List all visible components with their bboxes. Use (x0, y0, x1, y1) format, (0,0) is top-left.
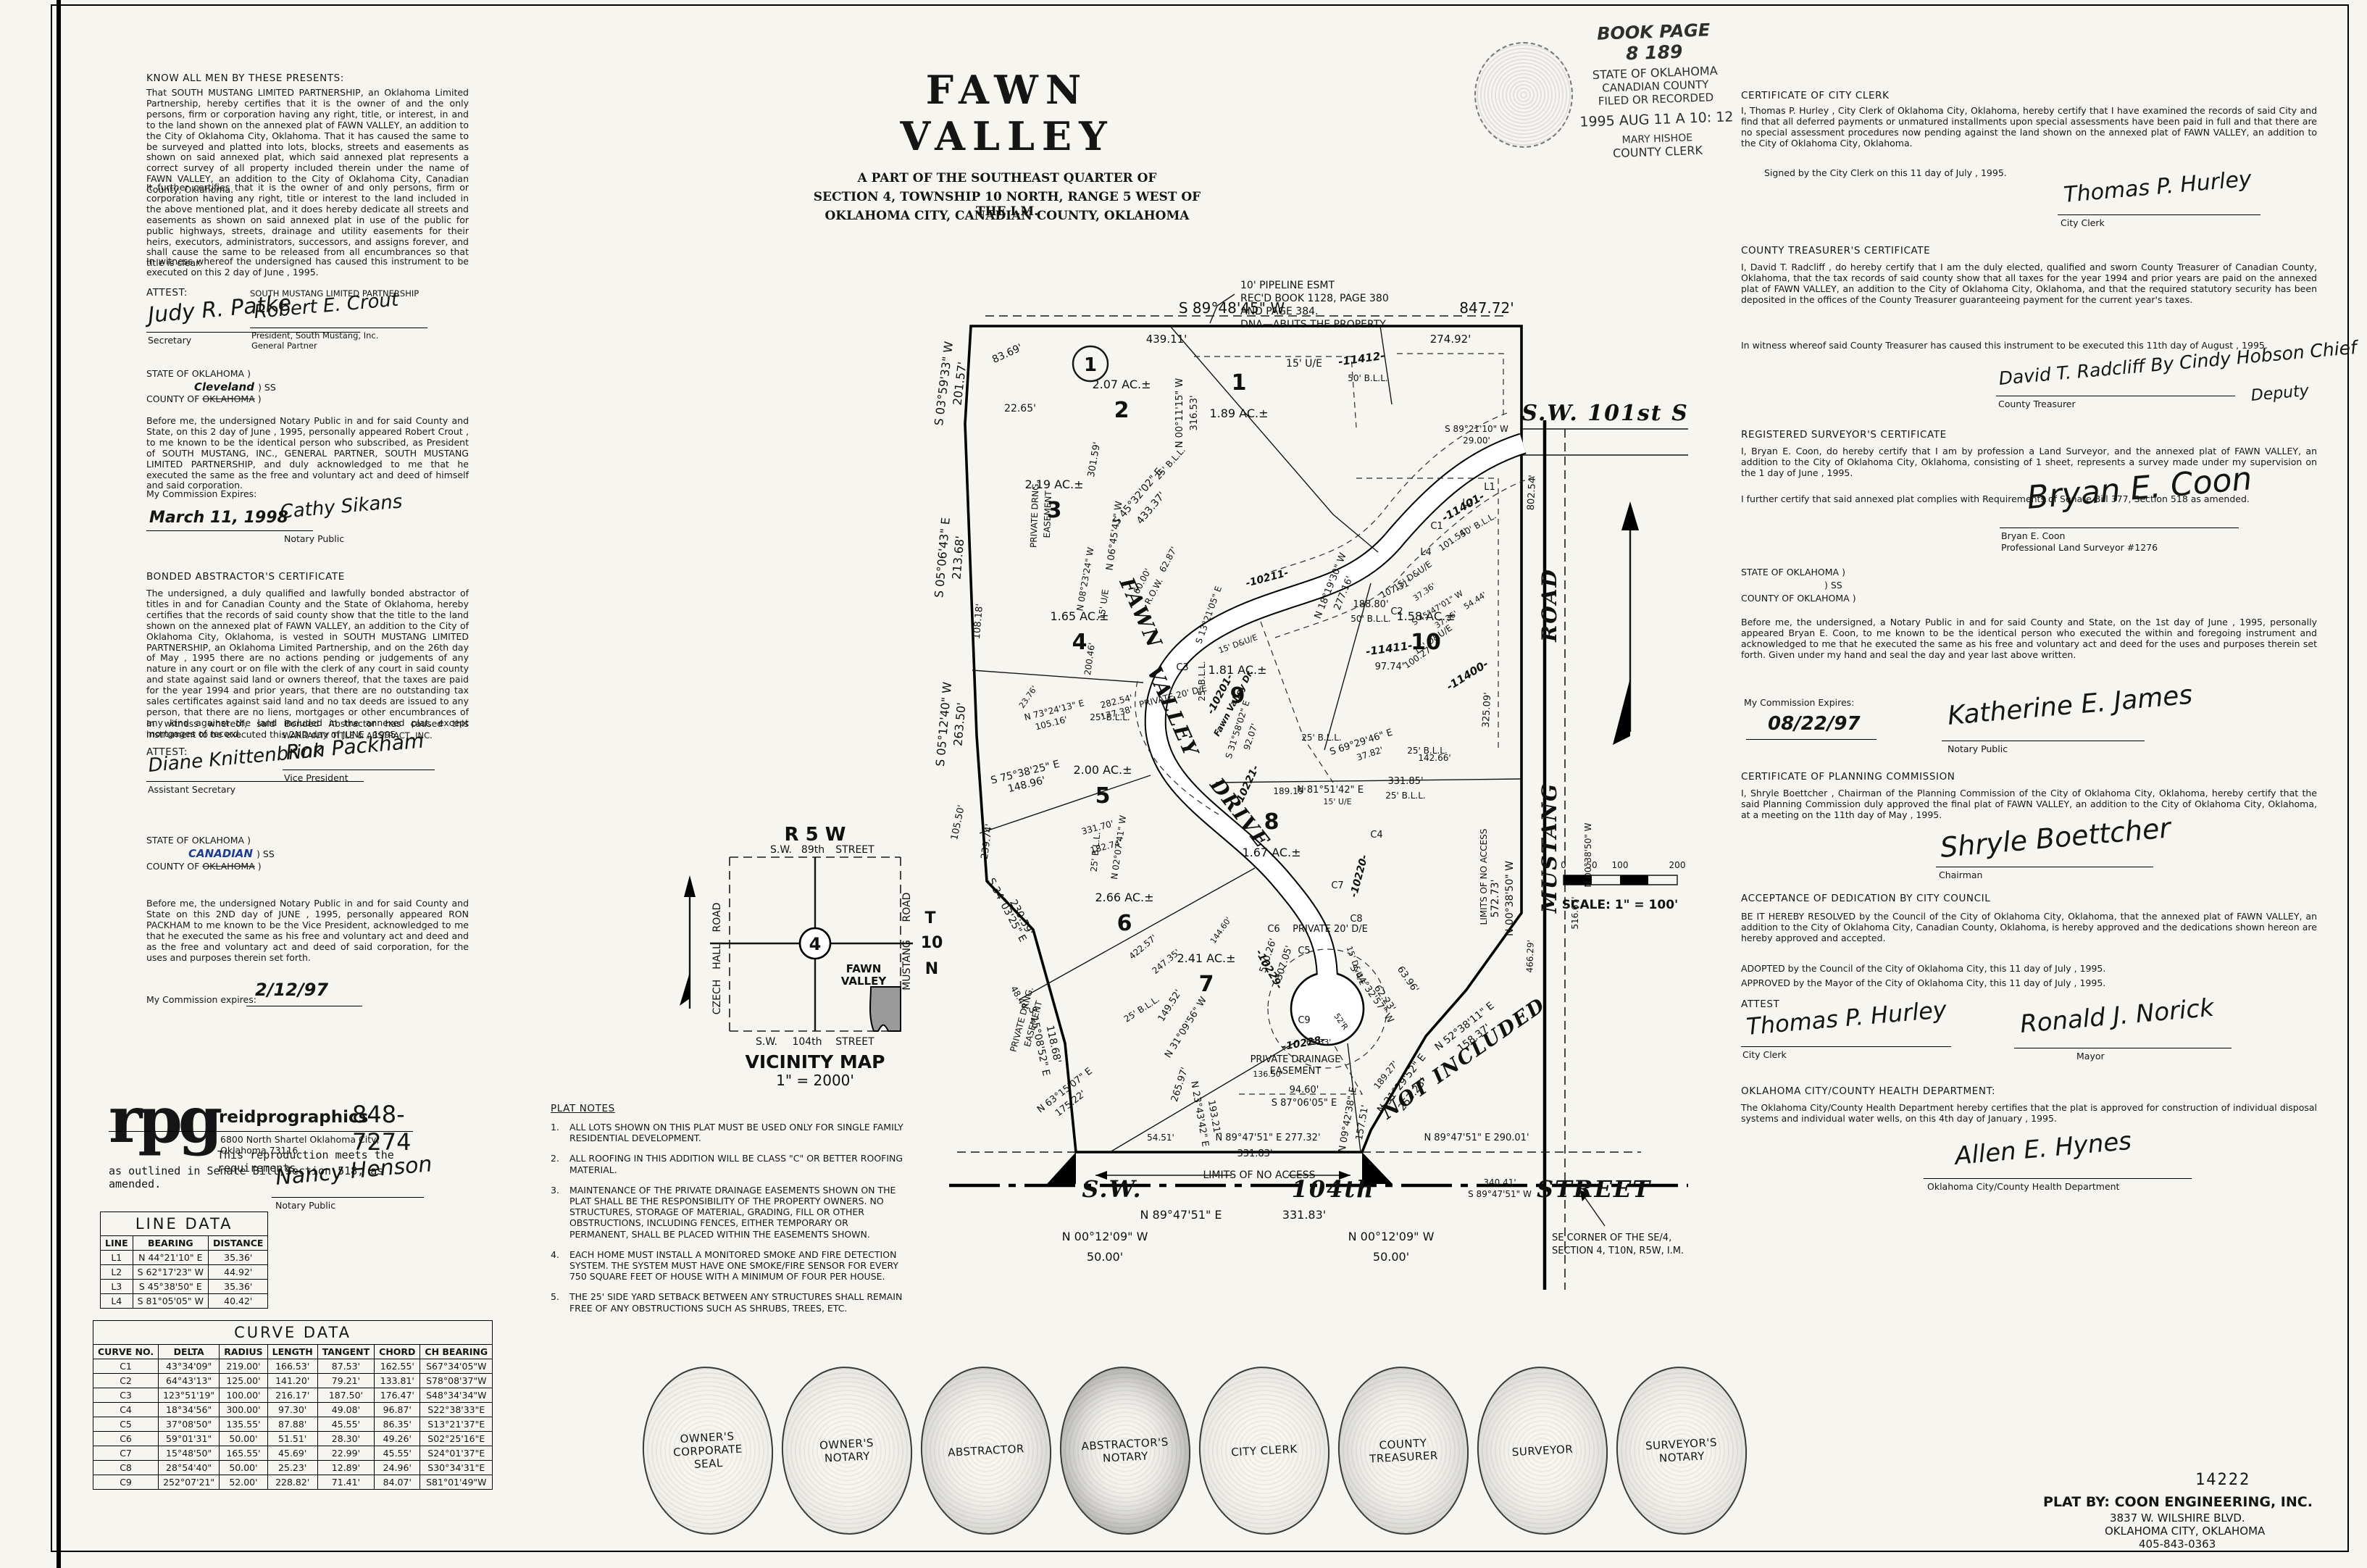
plat-label: 301.59' (1086, 441, 1103, 478)
plat-label: 7 (1199, 972, 1214, 997)
plat-label: N 89°47'51" E (1140, 1208, 1222, 1222)
plat-label: 2.19 AC.± (1024, 478, 1083, 491)
plat-label: 25' B.L.L. (1385, 791, 1425, 801)
table-cell: 96.87' (375, 1403, 420, 1417)
plat-label: 37.36' (1411, 581, 1437, 603)
notary3-paragraph: Before me, the undersigned, a Notary Pub… (1741, 617, 2317, 661)
plat-label: DNA—ABUTS THE PROPERTY (1240, 319, 1386, 330)
plat-label: 136.50' (1253, 1069, 1283, 1079)
plat-label: 8 (1264, 809, 1279, 835)
plat-label: N 08°23'24" W (1074, 546, 1095, 612)
table-cell: 52.00' (220, 1475, 267, 1490)
notary2-commission-value: 2/12/97 (255, 980, 328, 1000)
plat-note-text: EACH HOME MUST INSTALL A MONITORED SMOKE… (569, 1249, 910, 1283)
seal-label: COUNTY TREASURER (1359, 1435, 1448, 1466)
plat-label: 149.52' (1156, 988, 1185, 1024)
state2-line1: STATE OF OKLAHOMA ) (146, 835, 251, 846)
page-subtitle-3: OKLAHOMA CITY, CANADIAN COUNTY, OKLAHOMA (811, 209, 1203, 223)
table-header-cell: LENGTH (267, 1345, 317, 1359)
warranty-sigline (283, 770, 435, 770)
plat-label: 62.87' (1157, 545, 1179, 574)
smlp-role-2: General Partner (251, 341, 317, 351)
table-cell: 176.47' (375, 1388, 420, 1403)
easement-line (1261, 622, 1333, 783)
repro-rule (109, 1131, 413, 1132)
seal-label: SURVEYOR'S NOTARY (1637, 1435, 1726, 1466)
table-cell: S24°01'37"E (420, 1446, 493, 1461)
table-cell: 59°01'31" (159, 1432, 220, 1446)
plat-label: MUSTANG (901, 940, 913, 991)
plat-notes: PLAT NOTES 1.ALL LOTS SHOWN ON THIS PLAT… (551, 1103, 942, 1323)
warranty-role: Vice President (284, 772, 348, 783)
plat-label: PRIVATE DRAINAGE (1251, 1054, 1341, 1065)
state1-county-line: COUNTY OF OKLAHOMA ) (146, 393, 262, 404)
surveyor-license: Professional Land Surveyor #1276 (2001, 542, 2158, 553)
plat-label: R 5 W (785, 824, 846, 846)
plat-note-item: 1.ALL LOTS SHOWN ON THIS PLAT MUST BE US… (551, 1122, 942, 1143)
repro-note-2: as outlined in Senate Bill,Section 518, … (109, 1164, 420, 1190)
plat-label: N 00°12'09" W (1062, 1230, 1148, 1243)
plat-note-number: 2. (551, 1153, 559, 1175)
plat-label: 50' B.L.L. (1351, 614, 1390, 624)
plat-label: 2.66 AC.± (1095, 891, 1153, 904)
city-clerk-heading: CERTIFICATE OF CITY CLERK (1741, 90, 1890, 101)
plat-label: 331.83' (1282, 1208, 1326, 1222)
bonded-p1: The undersigned, a duly qualified and la… (146, 588, 469, 740)
sw-101st-row (1523, 429, 1688, 455)
embossed-seal (1474, 42, 1573, 148)
plat-label: S.W. (770, 844, 792, 856)
plat-label: 1.89 AC.± (1209, 406, 1268, 420)
plat-note-number: 3. (551, 1185, 559, 1240)
table-row: C418°34'56"300.00'97.30'49.08'96.87'S22°… (93, 1403, 493, 1417)
line-data-table: LINE DATA LINEBEARINGDISTANCE L1N 44°21'… (100, 1212, 268, 1309)
notary2-commission-label: My Commission expires: (146, 994, 256, 1005)
table-cell: S78°08'37"W (420, 1374, 493, 1388)
table-header-cell: DISTANCE (209, 1236, 268, 1251)
state3-line1: STATE OF OKLAHOMA ) (1741, 567, 1845, 577)
table-cell: S30°34'31"E (420, 1461, 493, 1475)
plat-label: 83.69' (990, 342, 1024, 366)
plat-label: ROAD (711, 903, 723, 933)
filing-stamp: BOOK PAGE 8 189 STATE OF OKLAHOMA CANADI… (1556, 18, 1756, 162)
plat-label: 105.50' (949, 804, 967, 841)
plat-label: -10211- (1245, 567, 1290, 590)
repro-name: reidprographics (219, 1108, 368, 1127)
plat-label: 1 (1084, 354, 1097, 376)
table-row: L4S 81°05'05" W40.42' (101, 1294, 268, 1309)
plat-label: STREET (1537, 1175, 1651, 1203)
surveyor-name: Bryan E. Coon (2001, 530, 2065, 541)
plat-label: S.W. 101st ST. (1521, 401, 1688, 426)
seal-label: SURVEYOR (1511, 1443, 1573, 1459)
plat-label: SCALE: 1" = 100' (1562, 898, 1679, 912)
notary2-paragraph: Before me, the undersigned Notary Public… (146, 898, 469, 963)
north-arrow-head (684, 875, 696, 897)
plat-label: N 09°42'38" E (1337, 1086, 1359, 1154)
plat-label: STREET (835, 1036, 874, 1048)
plat-label: 104th (1292, 1175, 1375, 1203)
plat-label: 10 (1411, 630, 1441, 655)
plat-label: 439.11' (1146, 333, 1187, 346)
plat-label: 89th (801, 844, 825, 856)
plat-label: L2 (1462, 498, 1474, 509)
table-header-cell: CURVE NO. (93, 1345, 159, 1359)
table-cell: C7 (93, 1446, 159, 1461)
table-cell: 219.00' (220, 1359, 267, 1374)
plat-label: 25' B.L.L. (1301, 733, 1341, 743)
table-row: C537°08'50"135.55'87.88'45.55'86.35'S13°… (93, 1417, 493, 1432)
north-arrow-head (1621, 501, 1639, 530)
table-cell: 71.41' (317, 1475, 374, 1490)
plat-label: L4 (1420, 547, 1432, 558)
plat-label: C5 (1298, 946, 1310, 956)
table-cell: 45.55' (375, 1446, 420, 1461)
north-arrow-fletch (680, 972, 690, 1006)
knowall-heading: KNOW ALL MEN BY THESE PRESENTS: (146, 72, 344, 84)
table-cell: S81°01'49"W (420, 1475, 493, 1490)
plat-label: 1.81 AC.± (1208, 663, 1266, 677)
table-header-cell: CHORD (375, 1345, 420, 1359)
table-cell: C3 (93, 1388, 159, 1403)
plat-label: S 87°06'05" E (1272, 1098, 1337, 1109)
table-cell: S13°21'37"E (420, 1417, 493, 1432)
plat-label: VALLEY (841, 975, 888, 988)
lot-line (1216, 779, 1521, 783)
table-cell: 25.23' (267, 1461, 317, 1475)
attest1-role: Secretary (148, 335, 191, 346)
plat-label: N 89°47'51" E 277.32' (1215, 1133, 1320, 1143)
plat-label: 61.33' (1306, 1038, 1332, 1047)
table-cell: 79.21' (317, 1374, 374, 1388)
table-cell: S48°34'34"W (420, 1388, 493, 1403)
plat-label: 63.96' (1395, 964, 1421, 995)
plat-label: MUSTANG (1537, 783, 1561, 914)
table-cell: 216.17' (267, 1388, 317, 1403)
table-cell: L4 (101, 1294, 133, 1309)
table-cell: 123°51'19" (159, 1388, 220, 1403)
lot-line (972, 670, 1143, 683)
plat-label: -11411- (1365, 639, 1414, 659)
state2-county-line: COUNTY OF OKLAHOMA ) (146, 861, 262, 872)
table-cell: 28.30' (317, 1432, 374, 1446)
attest2-role: Assistant Secretary (148, 784, 235, 795)
table-row: L1N 44°21'10" E35.36' (101, 1251, 268, 1265)
table-cell: 50.00' (220, 1461, 267, 1475)
state3-ss: ) SS (1824, 580, 1842, 591)
notary1-role: Notary Public (284, 533, 344, 544)
engineer-phone: 405-843-0363 (2139, 1538, 2216, 1551)
table-cell: 50.00' (220, 1432, 267, 1446)
plat-label: N 81°51'42" E (1297, 785, 1364, 796)
plat-label: 54.44' (1462, 590, 1488, 612)
page-title: FAWN VALLEY (855, 67, 1159, 159)
table-header-cell: BEARING (133, 1236, 208, 1251)
table-cell: 28°54'40" (159, 1461, 220, 1475)
plat-label: 50.00' (1087, 1250, 1123, 1264)
plat-label: C7 (1331, 880, 1343, 891)
plat-label: 316.53' (1189, 395, 1200, 430)
plat-drawing: S 89°48'45" W847.72'439.11'274.92'15' U/… (927, 275, 1688, 1290)
engineer-address-1: 3837 W. WILSHIRE BLVD. (2110, 1511, 2245, 1525)
council-heading: ACCEPTANCE OF DEDICATION BY CITY COUNCIL (1741, 893, 1990, 904)
plat-label: 50 (1586, 860, 1597, 870)
plat-number: 14222 (2195, 1471, 2250, 1489)
plat-label: -11412- (1337, 349, 1386, 369)
table-cell: C6 (93, 1432, 159, 1446)
plat-label: -10221- (1232, 763, 1261, 808)
plat-label: 274.92' (1430, 333, 1471, 346)
city-clerk-sigline (2058, 214, 2260, 215)
table-row: C9252°07'21"52.00'228.82'71.41'84.07'S81… (93, 1475, 493, 1490)
plat-label: 1.58 AC.± (1396, 609, 1455, 623)
table-cell: C1 (93, 1359, 159, 1374)
plat-label: 331.85' (1387, 776, 1423, 787)
line-data-title: LINE DATA (101, 1212, 268, 1236)
plat-label: 100 (1612, 860, 1629, 870)
plat-label: 2.41 AC.± (1177, 951, 1235, 965)
table-cell: 162.55' (375, 1359, 420, 1374)
curve-data-rows: C143°34'09"219.00'166.53'87.53'162.55'S6… (93, 1359, 493, 1490)
plat-label: S.W. (756, 1036, 777, 1048)
plat-label: 325.09' (1481, 692, 1494, 728)
curve-data-table: CURVE DATA CURVE NO.DELTARADIUSLENGTHTAN… (93, 1320, 493, 1490)
table-cell: S 62°17'23" W (133, 1265, 208, 1280)
surveyor-sigline (2000, 527, 2239, 528)
plat-label: C4 (1370, 830, 1382, 841)
plat-label: 265.97' (1169, 1066, 1190, 1103)
plat-label: S.W. (1082, 1175, 1142, 1203)
notary1-commission-value: March 11, 1998 (149, 509, 288, 527)
table-header-cell: DELTA (159, 1345, 220, 1359)
notary1-paragraph: Before me, the undersigned Notary Public… (146, 416, 469, 491)
table-cell: C4 (93, 1403, 159, 1417)
planning-heading: CERTIFICATE OF PLANNING COMMISSION (1741, 771, 1955, 783)
plat-label: 331.83' (1237, 1148, 1272, 1159)
council-mayor-sigline (2014, 1048, 2232, 1048)
table-cell: C2 (93, 1374, 159, 1388)
plat-label: C6 (1267, 924, 1279, 935)
council-paragraph: BE IT HEREBY RESOLVED by the Council of … (1741, 912, 2317, 944)
plat-label: 4 (1072, 630, 1088, 655)
table-cell: 135.55' (220, 1417, 267, 1432)
plat-label: 22.65' (1004, 403, 1036, 414)
table-cell: 49.26' (375, 1432, 420, 1446)
plat-label: NOT INCLUDED (1377, 993, 1550, 1124)
plat-label: 200 (1669, 860, 1686, 870)
table-cell: N 44°21'10" E (133, 1251, 208, 1265)
table-cell: 35.36' (209, 1280, 268, 1294)
table-header-cell: RADIUS (220, 1345, 267, 1359)
seal-label: CITY CLERK (1231, 1443, 1298, 1459)
table-header-cell: TANGENT (317, 1345, 374, 1359)
planning-role: Chairman (1939, 870, 1982, 880)
plat-label: 5 (1095, 783, 1111, 809)
plat-label: 4 (809, 934, 822, 954)
plat-label: 25' B.L.L. (1197, 661, 1207, 701)
table-cell: 15°48'50" (159, 1446, 220, 1461)
table-cell: L3 (101, 1280, 133, 1294)
surveyor-heading: REGISTERED SURVEYOR'S CERTIFICATE (1741, 429, 1947, 441)
plat-label: ROAD (901, 893, 913, 922)
table-cell: 64°43'13" (159, 1374, 220, 1388)
smlp-sigline (250, 328, 427, 328)
plat-note-number: 1. (551, 1122, 559, 1143)
sheet-left-edge (57, 0, 61, 1568)
table-cell: 187.50' (317, 1388, 374, 1403)
plat-label: 189.19' (1273, 786, 1306, 796)
plat-label: 466.29' (1524, 940, 1536, 973)
plat-label: -10220- (1348, 854, 1371, 899)
state1-county-hand: Cleveland ) SS (194, 380, 276, 393)
plat-label: 25' B.L.L. (1122, 994, 1161, 1025)
health-role: Oklahoma City/County Health Department (1927, 1181, 2119, 1192)
plat-note-item: 3.MAINTENANCE OF THE PRIVATE DRAINAGE EA… (551, 1185, 942, 1240)
notary3-role: Notary Public (1948, 743, 2008, 754)
plat-label: 188.80' (1353, 599, 1388, 610)
smlp-role-1: President, South Mustang, Inc. (251, 330, 378, 341)
table-cell: 166.53' (267, 1359, 317, 1374)
table-cell: 133.81' (375, 1374, 420, 1388)
table-cell: 97.30' (267, 1403, 317, 1417)
plat-label: 29.00' (1463, 435, 1490, 446)
plat-label: 94.60' (1290, 1085, 1319, 1096)
planning-paragraph: I, Shryle Boettcher , Chairman of the Pl… (1741, 788, 2317, 821)
table-cell: C5 (93, 1417, 159, 1432)
plat-label: C1 (1430, 521, 1443, 532)
engineer-address-2: OKLAHOMA CITY, OKLAHOMA (2105, 1525, 2265, 1538)
plat-label: 142.66' (1418, 753, 1450, 763)
notary3-commission-value: 08/22/97 (1768, 713, 1861, 735)
table-row: L3S 45°38'50" E35.36' (101, 1280, 268, 1294)
table-row: C659°01'31"50.00'51.51'28.30'49.26'S02°2… (93, 1432, 493, 1446)
plat-label: C8 (1350, 914, 1362, 925)
notary1-commission-line (146, 530, 313, 531)
table-row: C3123°51'19"100.00'216.17'187.50'176.47'… (93, 1388, 493, 1403)
plat-label: L1 (1484, 482, 1495, 493)
plat-label: 108.18' (972, 604, 985, 640)
table-cell: 18°34'56" (159, 1403, 220, 1417)
table-cell: 24.96' (375, 1461, 420, 1475)
table-header-cell: CH BEARING (420, 1345, 493, 1359)
table-cell: 86.35' (375, 1417, 420, 1432)
plat-note-number: 5. (551, 1291, 559, 1313)
plat-label: N 23°43'42" E (1188, 1080, 1211, 1148)
notary2-role: Notary Public (275, 1200, 335, 1211)
health-sigline (1924, 1178, 2192, 1179)
plat-label: 92.07' (1242, 722, 1260, 751)
plat-label: 50.00' (1373, 1250, 1409, 1264)
table-row: C143°34'09"219.00'166.53'87.53'162.55'S6… (93, 1359, 493, 1374)
seal-label: ABSTRACTOR'S NOTARY (1081, 1435, 1169, 1466)
plat-label: 25' B.L.L. (1153, 445, 1187, 482)
lot-line (1380, 326, 1392, 404)
council-clerk-sigline (1741, 1046, 1951, 1047)
table-cell: 44.92' (209, 1265, 268, 1280)
table-cell: 252°07'21" (159, 1475, 220, 1490)
plat-label: -11400- (1444, 657, 1490, 693)
bonded-heading: BONDED ABSTRACTOR'S CERTIFICATE (146, 571, 345, 583)
plat-label: S 05°12'40" W (933, 681, 954, 767)
notary3-commission-label: My Commission Expires: (1744, 697, 1854, 708)
notary3-commission-line (1746, 739, 1877, 740)
plat-label: 2.00 AC.± (1073, 763, 1132, 777)
plat-label: 23.76' (1017, 684, 1039, 710)
plat-label: 10' PIPELINE ESMT (1240, 280, 1335, 291)
plat-label: N 00°12'09" W (1348, 1230, 1435, 1243)
table-row: C828°54'40"50.00'25.23'12.89'24.96'S30°3… (93, 1461, 493, 1475)
plat-note-text: ALL LOTS SHOWN ON THIS PLAT MUST BE USED… (569, 1122, 910, 1143)
plat-label: N 89°47'51" E 290.01' (1424, 1133, 1529, 1143)
knowall-witness: In witness whereof the undersigned has c… (146, 257, 469, 278)
plat-note-number: 4. (551, 1249, 559, 1283)
plat-label: C3 (1176, 662, 1188, 673)
table-cell: S 81°05'05" W (133, 1294, 208, 1309)
building-line (1397, 354, 1503, 417)
seal-label: OWNER'S NOTARY (803, 1435, 891, 1466)
table-cell: S 45°38'50" E (133, 1280, 208, 1294)
plat-by: PLAT BY: COON ENGINEERING, INC. (2043, 1494, 2313, 1510)
plat-label: AND PAGE 384. (1240, 306, 1318, 317)
table-cell: 228.82' (267, 1475, 317, 1490)
table-cell: 300.00' (220, 1403, 267, 1417)
plat-label: 0 (1561, 860, 1566, 870)
plat-label: REC'D BOOK 1128, PAGE 380 (1240, 293, 1389, 304)
plat-label: SE CORNER OF THE SE/4, (1552, 1233, 1671, 1243)
plat-label: 1" = 2000' (776, 1072, 854, 1089)
planning-sigline (1936, 867, 2153, 867)
table-cell: 84.07' (375, 1475, 420, 1490)
plat-label: LIMITS OF NO ACCESS (1479, 829, 1489, 925)
state1-line1: STATE OF OKLAHOMA ) (146, 368, 251, 379)
table-cell: 87.88' (267, 1417, 317, 1432)
plat-label: N 06°45'41" W (1104, 501, 1124, 572)
state3-line2: COUNTY OF OKLAHOMA ) (1741, 593, 1856, 604)
plat-label: 144.60' (1208, 915, 1233, 945)
council-clerk-role: City Clerk (1742, 1049, 1787, 1060)
plat-label: 54.51' (1147, 1133, 1174, 1143)
fawn-valley-area (870, 987, 901, 1031)
plat-label: 2.07 AC.± (1092, 378, 1151, 391)
state2-county-hand: CANADIAN ) SS (188, 846, 275, 860)
council-attest-label: ATTEST (1741, 998, 1779, 1010)
plat-label: PRIVATE 20' D/E (1293, 924, 1368, 935)
table-cell: S22°38'33"E (420, 1403, 493, 1417)
plat-label: 213.68' (949, 535, 967, 580)
notary3-sigline (1942, 741, 2145, 741)
table-cell: S67°34'05"W (420, 1359, 493, 1374)
table-row: C715°48'50"165.55'45.69'22.99'45.55'S24°… (93, 1446, 493, 1461)
table-row: L2S 62°17'23" W44.92' (101, 1265, 268, 1280)
plat-note-item: 4.EACH HOME MUST INSTALL A MONITORED SMO… (551, 1249, 942, 1283)
line-data-rows: L1N 44°21'10" E35.36'L2S 62°17'23" W44.9… (101, 1251, 268, 1309)
council-adopted: ADOPTED by the Council of the City of Ok… (1741, 964, 2317, 975)
line-data-headers: LINEBEARINGDISTANCE (101, 1236, 268, 1251)
plat-label: 104th (792, 1036, 822, 1048)
table-cell: C8 (93, 1461, 159, 1475)
plat-label: S 89°21'10" W (1445, 424, 1508, 434)
treasurer-paragraph: I, David T. Radcliff , do hereby certify… (1741, 262, 2317, 306)
plat-label: 1.67 AC.± (1242, 846, 1301, 859)
plat-label: 1.65 AC.± (1050, 609, 1109, 623)
council-mayor-role: Mayor (2076, 1051, 2105, 1062)
curve-data-headers: CURVE NO.DELTARADIUSLENGTHTANGENTCHORDCH… (93, 1345, 493, 1359)
table-cell: 35.36' (209, 1251, 268, 1265)
plat-label: 239.74' (980, 823, 995, 860)
table-cell: 12.89' (317, 1461, 374, 1475)
plat-label: ROAD (1537, 568, 1561, 643)
seal-label: OWNER'S CORPORATE SEAL (664, 1429, 753, 1472)
